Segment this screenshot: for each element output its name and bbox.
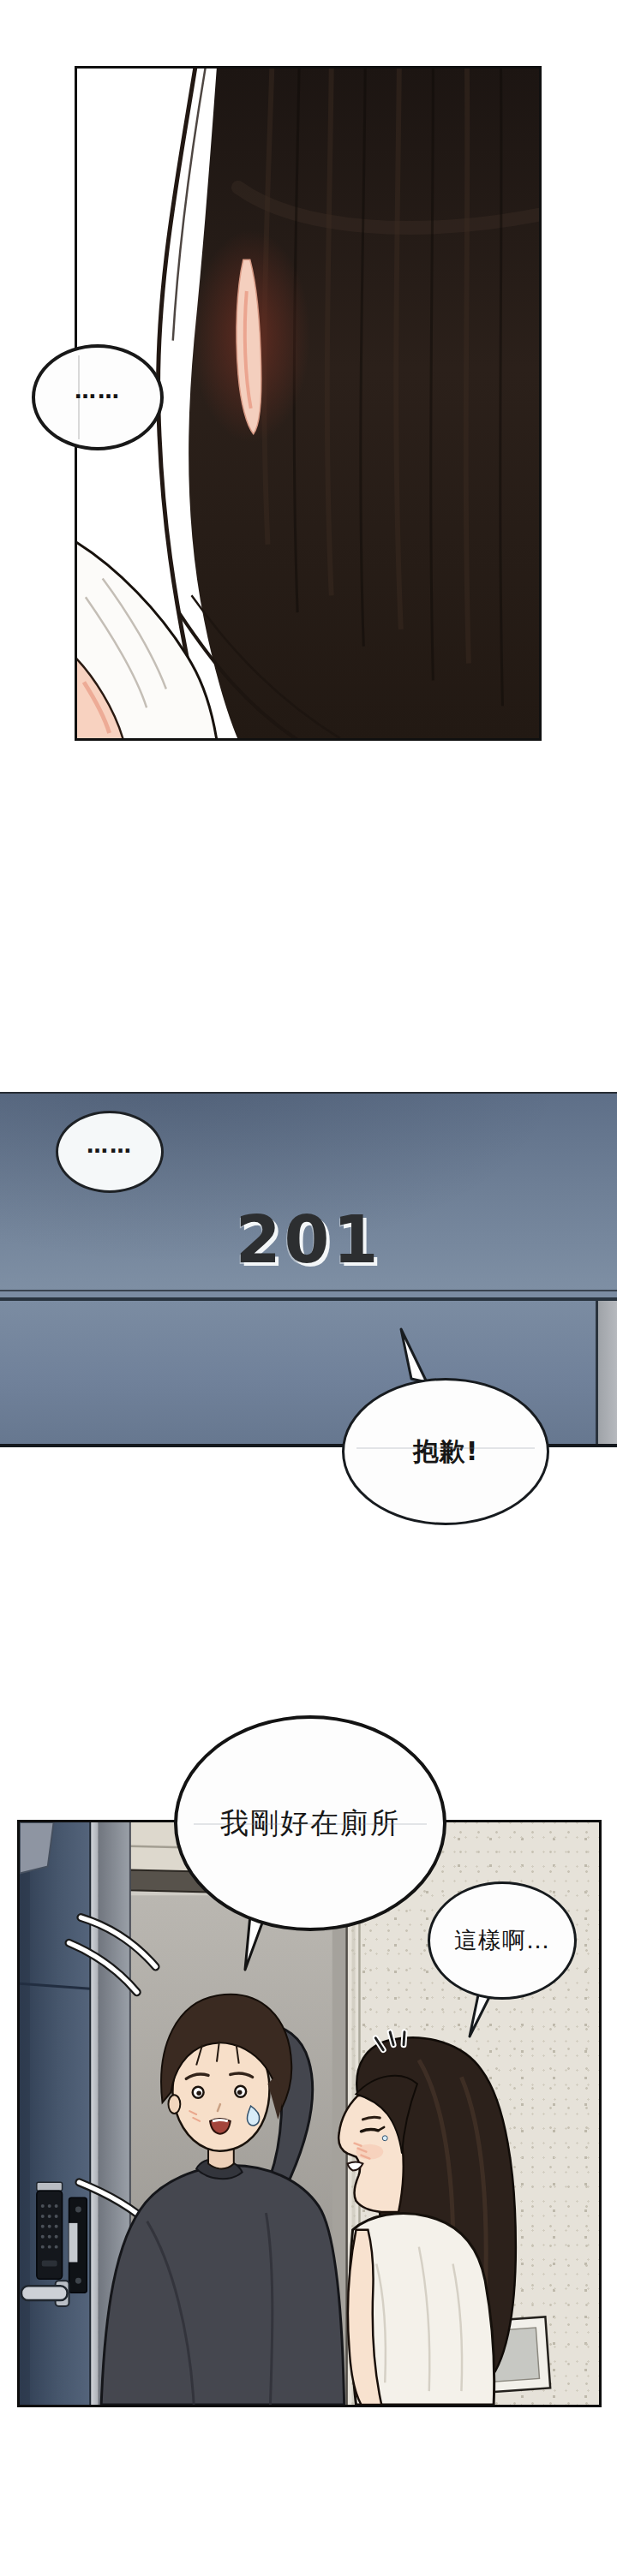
woman-dialogue-text: 這樣啊…: [454, 1925, 550, 1956]
panel-2-door-201: 201 ……: [0, 1092, 617, 1447]
silence-dots-text: ……: [87, 1132, 133, 1157]
silence-speech-bubble-1: ……: [32, 344, 164, 450]
sorry-bubble-tail: [377, 1326, 446, 1386]
door-frame-gap: [0, 1291, 617, 1297]
panel-border-seam: [194, 1823, 428, 1825]
door-frame-strip: [596, 1301, 617, 1446]
door-number: 201: [0, 1207, 617, 1273]
sorry-speech-bubble: 抱歉!: [342, 1378, 549, 1525]
panel-border-seam: [356, 1447, 535, 1449]
silence-dots-text: ……: [75, 378, 121, 402]
woman-speech-bubble: 這樣啊…: [428, 1881, 577, 2000]
man-speech-bubble: 我剛好在廁所: [174, 1715, 446, 1931]
silence-speech-bubble-2: ……: [56, 1111, 164, 1193]
woman-character: [338, 2032, 516, 2405]
sorry-text: 抱歉!: [413, 1434, 479, 1470]
door-keypad-lock: [37, 2182, 63, 2279]
webtoon-page: { "comic": { "type": "webtoon-page", "pa…: [0, 0, 617, 2576]
open-door: [20, 1822, 98, 2405]
door-latch-plate: [69, 2197, 87, 2293]
neck-skin-blush: [192, 230, 310, 443]
